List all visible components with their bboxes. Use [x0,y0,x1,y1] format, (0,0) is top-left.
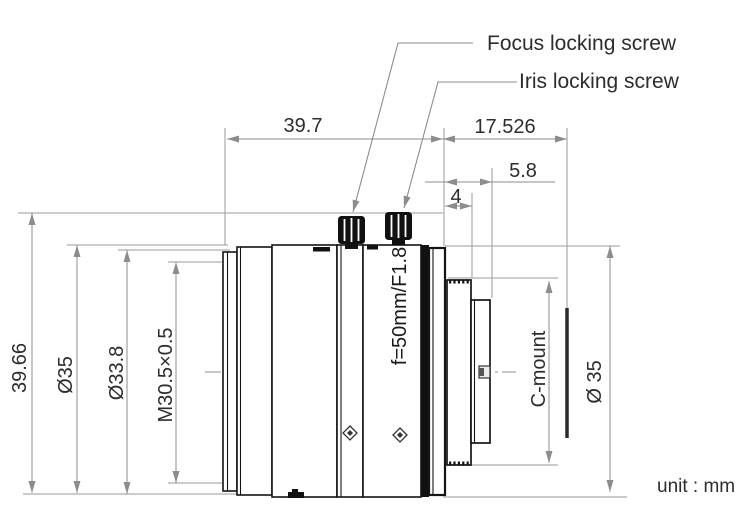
rear-black-band [421,245,429,497]
dim-rear-4: 4 [450,186,461,208]
iris-screw-label: Iris locking screw [519,70,680,93]
dim-dia35-right: Ø 35 [584,360,606,403]
front-bezel-ring [223,252,237,491]
front-ring [237,247,272,495]
rear-flange [429,248,445,495]
iris-locking-screw [385,212,412,245]
dim-front-length: 39.7 [284,115,323,137]
iris-index-tick [367,245,378,250]
focus-screw-label: Focus locking screw [487,32,677,55]
dim-dia338: Ø33.8 [106,346,128,400]
dim-cmount: C-mount [528,330,550,407]
focus-ring [272,245,337,497]
dim-dia35-left: Ø35 [55,356,77,394]
cmount-thread-ring [447,280,471,465]
dim-filter-thread: M30.5×0.5 [155,327,177,422]
lens-spec-marking: f=50mm/F1.8 [389,247,411,365]
focus-index-tick [313,247,330,252]
rear-locating-tab-dark [479,368,484,376]
unit-note: unit : mm [657,476,735,497]
lens-body [223,212,490,498]
lens-technical-drawing: Focus locking screw Iris locking screw 3… [0,0,751,505]
focus-locking-screw [338,216,365,249]
dim-rear-58: 5.8 [509,160,537,182]
dim-flange-focal: 17.526 [474,116,535,138]
dim-overall-height: 39.66 [9,343,31,393]
